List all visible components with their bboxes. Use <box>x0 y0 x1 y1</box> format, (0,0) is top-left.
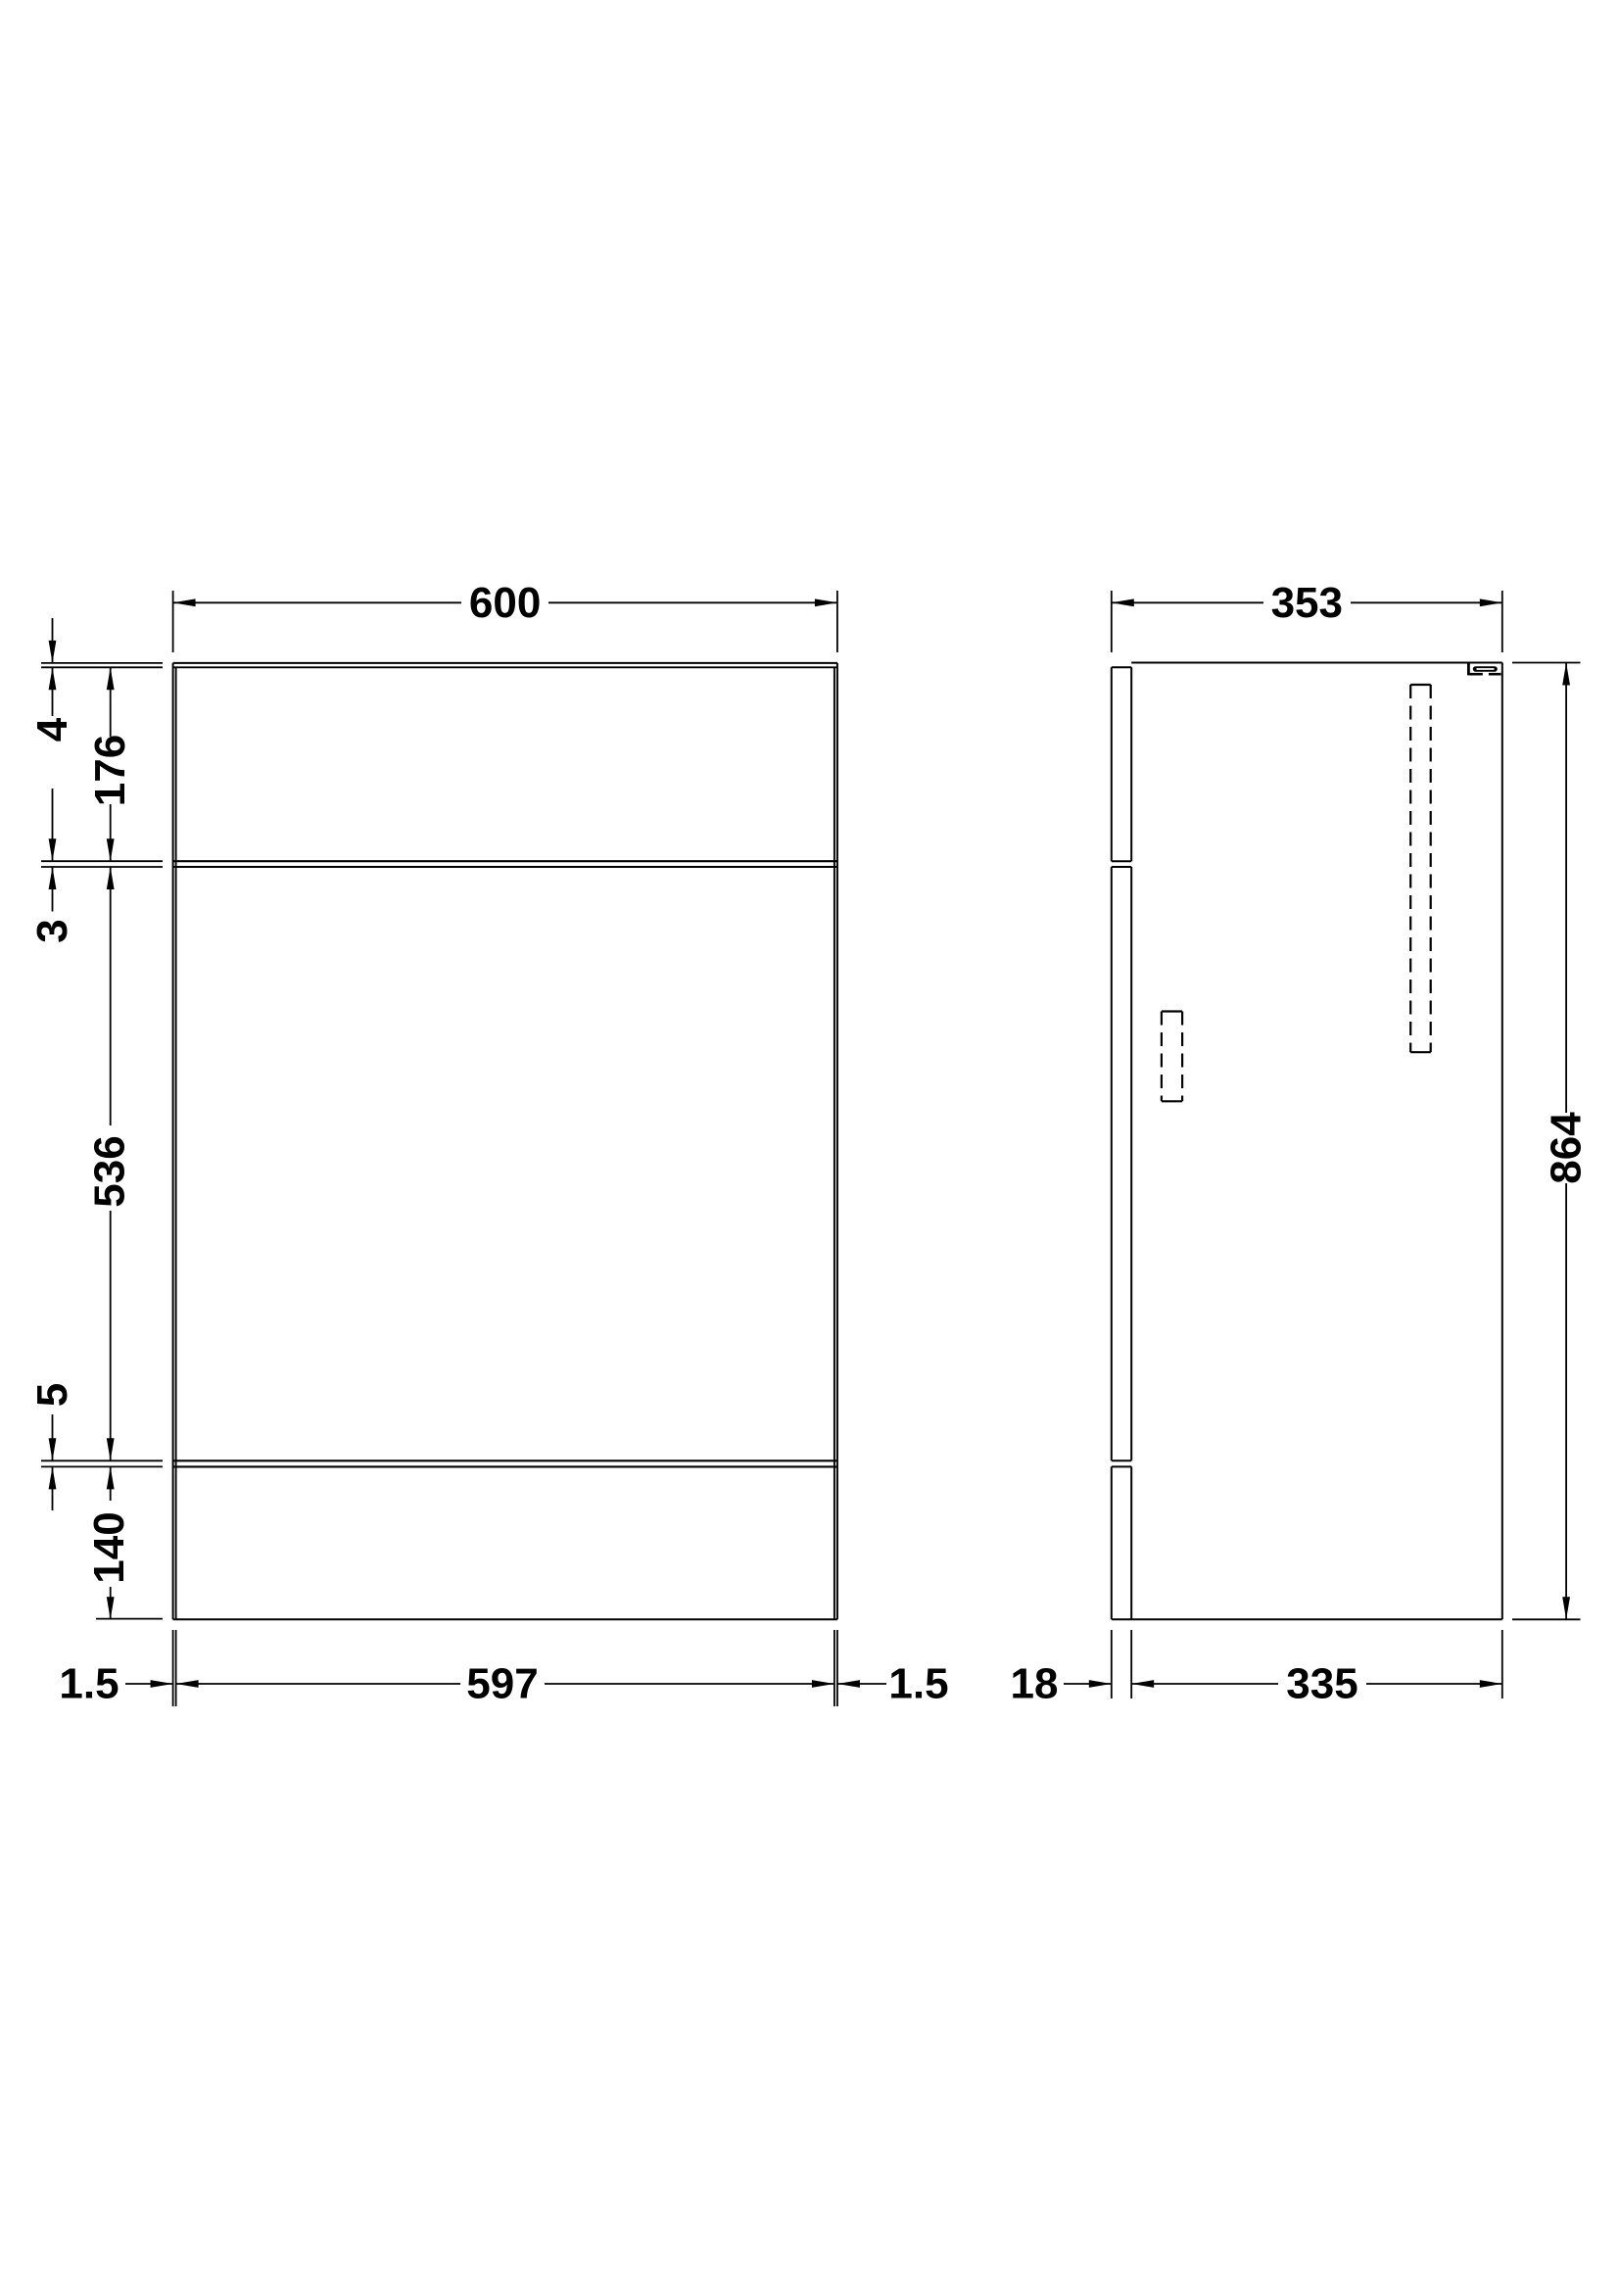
svg-text:536: 536 <box>86 1135 134 1207</box>
svg-text:597: 597 <box>466 1660 538 1708</box>
svg-text:3: 3 <box>28 919 76 942</box>
svg-text:353: 353 <box>1271 579 1343 627</box>
svg-text:600: 600 <box>469 579 541 627</box>
svg-text:5: 5 <box>28 1383 76 1407</box>
svg-text:176: 176 <box>86 735 134 806</box>
svg-text:18: 18 <box>1011 1660 1059 1708</box>
svg-text:335: 335 <box>1286 1660 1357 1708</box>
svg-text:1.5: 1.5 <box>888 1660 948 1708</box>
svg-text:864: 864 <box>1543 1112 1591 1184</box>
svg-text:140: 140 <box>85 1511 133 1583</box>
svg-text:4: 4 <box>28 717 76 741</box>
svg-text:1.5: 1.5 <box>59 1660 119 1708</box>
